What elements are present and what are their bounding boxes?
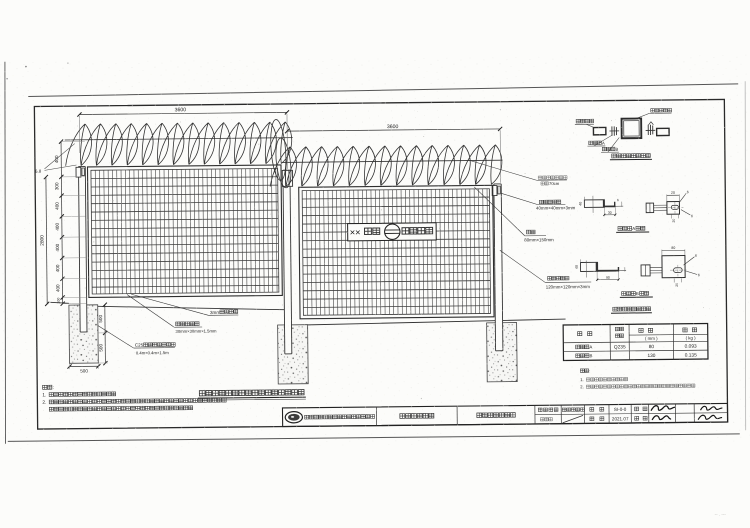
svg-text:-- . ---: -- . --- [715,511,727,516]
